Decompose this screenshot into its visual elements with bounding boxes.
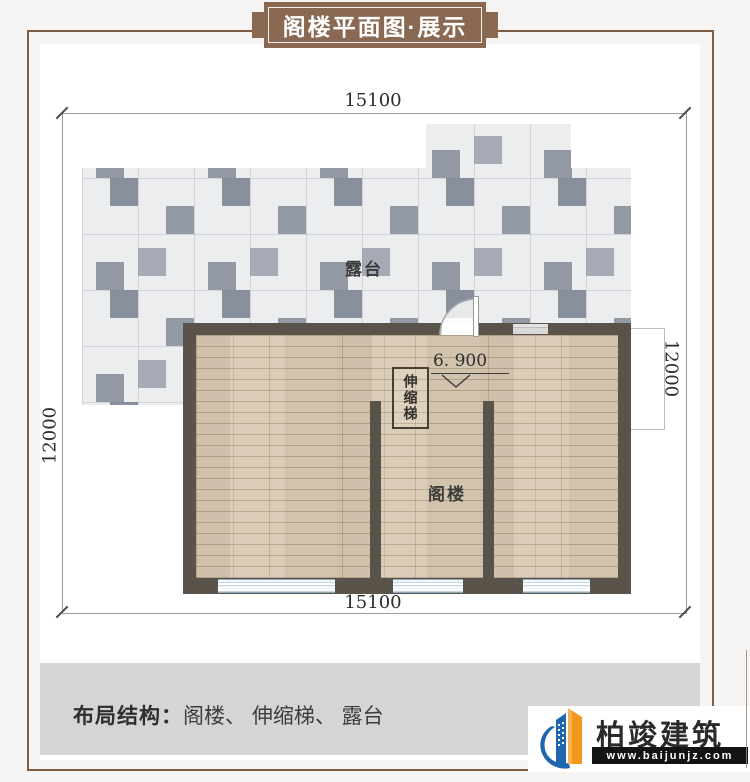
attic-structure bbox=[183, 323, 631, 594]
retractable-stair-box: 伸缩梯 bbox=[392, 367, 429, 429]
door-leaf bbox=[473, 296, 479, 337]
level-mark-icon bbox=[441, 374, 471, 389]
window bbox=[523, 579, 590, 593]
dimension-label-top: 15100 bbox=[323, 90, 423, 111]
door-swing-icon bbox=[439, 298, 477, 336]
attic-label: 阁楼 bbox=[407, 480, 487, 505]
layout-structure-label: 布局结构： bbox=[73, 705, 183, 728]
logo-url-bar: www.baijunjz.com bbox=[592, 747, 748, 764]
window bbox=[218, 579, 335, 593]
dimension-label-left: 12000 bbox=[40, 404, 61, 468]
window bbox=[393, 579, 463, 593]
logo-building-icon bbox=[536, 704, 592, 770]
partition-wall bbox=[370, 401, 381, 578]
stair-label: 伸缩梯 bbox=[401, 374, 421, 422]
page-title: 阁楼平面图·展示 bbox=[283, 8, 468, 42]
layout-structure-text: 布局结构：阁楼、 伸缩梯、 露台 bbox=[73, 700, 384, 730]
layout-structure-items: 阁楼、 伸缩梯、 露台 bbox=[183, 705, 384, 728]
right-bay-outline bbox=[628, 328, 665, 430]
logo-url: www.baijunjz.com bbox=[607, 750, 734, 762]
right-edge-line bbox=[746, 650, 747, 768]
title-banner: 阁楼平面图·展示 bbox=[252, 2, 498, 48]
terrace-label: 露台 bbox=[324, 255, 404, 280]
window bbox=[513, 324, 548, 334]
level-value: 6. 900 bbox=[425, 351, 495, 371]
page: 阁楼平面图·展示 15100 15100 12000 12000 露台 伸缩梯 … bbox=[0, 0, 750, 782]
dimension-label-bottom: 15100 bbox=[323, 592, 423, 613]
